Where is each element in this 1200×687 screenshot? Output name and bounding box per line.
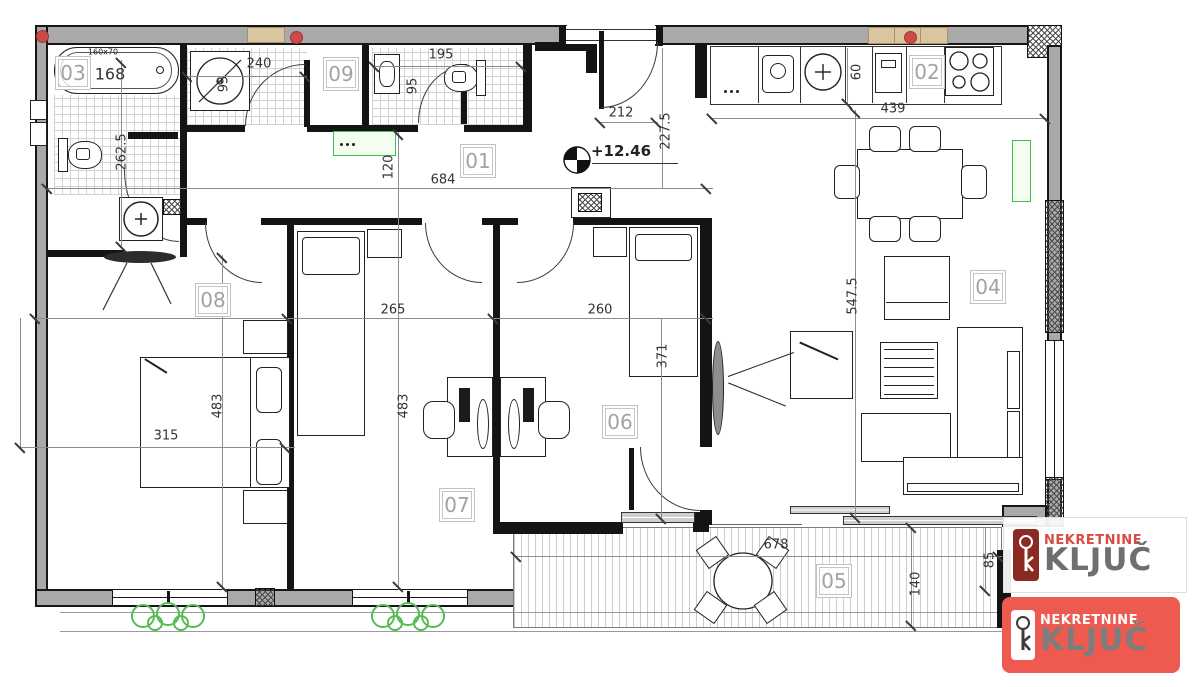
dining-table — [857, 149, 963, 219]
wall — [180, 218, 207, 225]
shaft-divider — [920, 27, 921, 44]
pillow — [635, 234, 692, 261]
armchair-seat-line — [886, 302, 948, 303]
dim-text-entry-depth: 227.5 — [659, 112, 674, 149]
dim-text-bath-depth: 262.5 — [115, 133, 130, 170]
column-small — [255, 588, 275, 607]
dim-text-closet-width: 240 — [247, 57, 272, 72]
entry-closet-wall — [586, 42, 597, 73]
sliding-door-living — [790, 506, 890, 514]
dining-chair — [869, 126, 901, 152]
dim-line — [398, 132, 399, 590]
wall — [482, 218, 518, 225]
ceiling-lamp-icon — [95, 250, 185, 316]
dishwasher-panel — [881, 60, 896, 68]
floor-plan: 168 160x70 262.5 240 95 195 95 212 227.5… — [0, 0, 1200, 687]
stove — [945, 47, 994, 96]
dim-line — [47, 188, 713, 189]
dim-text-terrace-depth: 140 — [909, 572, 924, 597]
dim-text-entry-width: 212 — [609, 106, 634, 121]
kitchen-sink-icon — [801, 51, 845, 95]
dishwasher — [875, 53, 902, 93]
dim-text-corridor-length: 684 — [431, 173, 456, 188]
room-label-05: 05 — [816, 564, 852, 598]
nightstand — [243, 490, 288, 524]
dim-text-room07-depth: 483 — [397, 394, 412, 419]
dim-text-terrace-side: 85 — [983, 552, 998, 569]
dim-line — [372, 66, 523, 67]
dim-text-room08-depth: 483 — [211, 394, 226, 419]
room-label-02: 02 — [909, 55, 945, 89]
dim-text-terrace-length: 678 — [764, 538, 789, 553]
room-label-06: 06 — [602, 405, 638, 439]
dim-text-shower-width: 95 — [217, 76, 232, 93]
pillow — [256, 439, 282, 485]
dim-text-kitchen-length: 439 — [881, 102, 906, 117]
vent-icon — [904, 31, 917, 44]
toilet-bowl-inner — [452, 71, 466, 83]
shaft-box — [30, 122, 47, 146]
column-right-upper — [1045, 200, 1064, 333]
desk-chair — [538, 401, 570, 439]
shaft-wood-left — [247, 27, 285, 43]
pillow — [256, 367, 282, 413]
agency-watermark: NEKRETNINE KLJUČ — [1003, 517, 1187, 593]
tv-view-line — [728, 382, 786, 406]
wall — [464, 125, 523, 132]
dim-text-room06-width: 260 — [588, 303, 613, 318]
radiator — [1012, 140, 1031, 202]
level-marker-icon — [560, 143, 594, 177]
plant-box-icon — [118, 600, 218, 636]
door-arc-room07 — [425, 223, 482, 283]
sofa-cushion — [907, 483, 1019, 492]
wall — [493, 225, 500, 528]
dining-chair — [869, 216, 901, 242]
dining-chair — [909, 216, 941, 242]
desk-chair-back — [508, 399, 520, 449]
room-label-03: 03 — [55, 56, 91, 90]
room-label-07: 07 — [439, 488, 475, 522]
sink-basin — [379, 61, 395, 87]
counter-divider — [906, 47, 907, 103]
dim-line — [847, 48, 848, 104]
coffee-table — [861, 413, 951, 462]
tv-stand-shelves — [884, 347, 934, 395]
pillow — [302, 237, 360, 275]
key-icon — [1011, 610, 1035, 660]
dim-text-room06-depth: 371 — [656, 344, 671, 369]
toilet-bowl-inner — [76, 148, 90, 160]
wall — [187, 125, 245, 132]
monitor — [459, 388, 470, 422]
drawer-handles — [724, 90, 727, 93]
door-leaf — [629, 448, 634, 510]
dim-text-room07-width: 265 — [381, 303, 406, 318]
dining-chair — [961, 165, 987, 199]
room-label-08: 08 — [195, 283, 231, 317]
plant-box-icon — [358, 600, 458, 636]
dim-text-wc-width: 195 — [429, 48, 454, 63]
room-label-09: 09 — [323, 57, 359, 91]
wall — [573, 218, 702, 225]
shaft-divider — [894, 27, 895, 44]
dim-text-living-depth: 547.5 — [846, 277, 861, 314]
bed-headboard-line — [250, 357, 251, 488]
dim-text-room08-width: 315 — [154, 429, 179, 444]
room-label-01: 01 — [460, 144, 496, 178]
dim-text-tub-size: 160x70 — [88, 48, 118, 57]
door-arc-room08 — [205, 223, 262, 283]
dim-line — [20, 318, 21, 448]
agency-logo: NEKRETNINE KLJUČ — [1002, 597, 1180, 673]
wall — [523, 45, 532, 132]
desk-chair-back — [477, 399, 489, 449]
nightstand — [593, 227, 627, 257]
shaft-box — [30, 100, 47, 120]
counter-divider — [872, 47, 873, 103]
threshold-line — [566, 40, 656, 41]
dim-text-wc-depth: 95 — [406, 78, 421, 95]
door-arc-room06 — [517, 223, 574, 283]
vent-icon — [36, 30, 49, 43]
dim-line — [712, 118, 1047, 119]
logo-name-text: KLJUČ — [1040, 625, 1148, 656]
dim-line — [20, 447, 295, 448]
wall — [128, 132, 178, 139]
tv-view-line — [728, 352, 794, 377]
monitor — [523, 388, 534, 422]
counter-divider — [845, 47, 846, 103]
logo-name-text: KLJUČ — [1044, 545, 1152, 576]
nightstand — [243, 320, 288, 354]
shelf — [367, 229, 402, 258]
desk-chair — [423, 401, 455, 439]
washing-machine — [119, 197, 163, 241]
dim-text-corridor-width: 120 — [382, 155, 397, 180]
wall — [362, 45, 369, 132]
washing-machine-drum — [120, 198, 162, 240]
dim-line — [187, 76, 307, 77]
coffee-machine-dial — [770, 63, 786, 79]
vent-icon — [290, 31, 303, 44]
door-arc-room06-living — [640, 447, 700, 511]
wall — [693, 512, 709, 532]
wall — [695, 45, 707, 98]
entrance-door-arc — [601, 42, 658, 108]
key-icon — [1013, 529, 1039, 581]
sofa-cushion — [1007, 351, 1020, 409]
counter-divider — [758, 47, 759, 103]
room-label-04: 04 — [970, 270, 1006, 304]
dim-line — [513, 556, 1002, 557]
stove-burners-icon — [946, 48, 993, 95]
corridor-cabinet-hatch — [578, 193, 602, 212]
level-value: +12.46 — [591, 142, 651, 160]
opening-line — [712, 524, 802, 525]
bathtub-drain — [156, 66, 164, 74]
dim-text-bath-area: 168 — [95, 65, 126, 84]
wall — [700, 218, 712, 447]
window-right — [1045, 340, 1064, 480]
armchair — [884, 256, 950, 320]
dim-text-kitchen-depth: 60 — [850, 64, 865, 81]
threshold-line — [566, 29, 656, 30]
dim-line — [855, 110, 856, 520]
level-line — [592, 163, 678, 164]
dining-chair — [834, 165, 860, 199]
dining-chair — [909, 126, 941, 152]
dim-line — [600, 122, 658, 123]
radiator-marks — [340, 143, 343, 146]
wall-top-right — [655, 25, 1029, 45]
tv — [712, 341, 724, 435]
wall — [493, 522, 623, 534]
dim-line — [35, 318, 713, 319]
toilet-tank — [58, 138, 68, 172]
